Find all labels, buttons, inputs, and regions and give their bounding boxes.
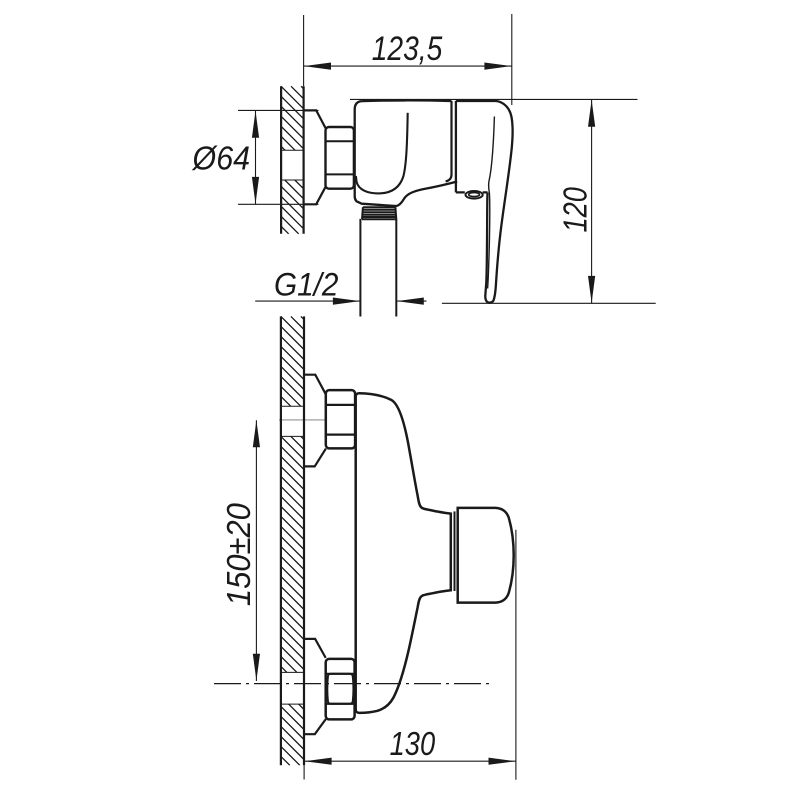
- svg-text:130: 130: [390, 725, 436, 762]
- svg-text:120: 120: [556, 187, 593, 233]
- svg-text:150±20: 150±20: [220, 503, 257, 607]
- svg-text:Ø64: Ø64: [192, 139, 250, 176]
- svg-text:123,5: 123,5: [372, 30, 443, 68]
- svg-text:G1/2: G1/2: [274, 267, 339, 303]
